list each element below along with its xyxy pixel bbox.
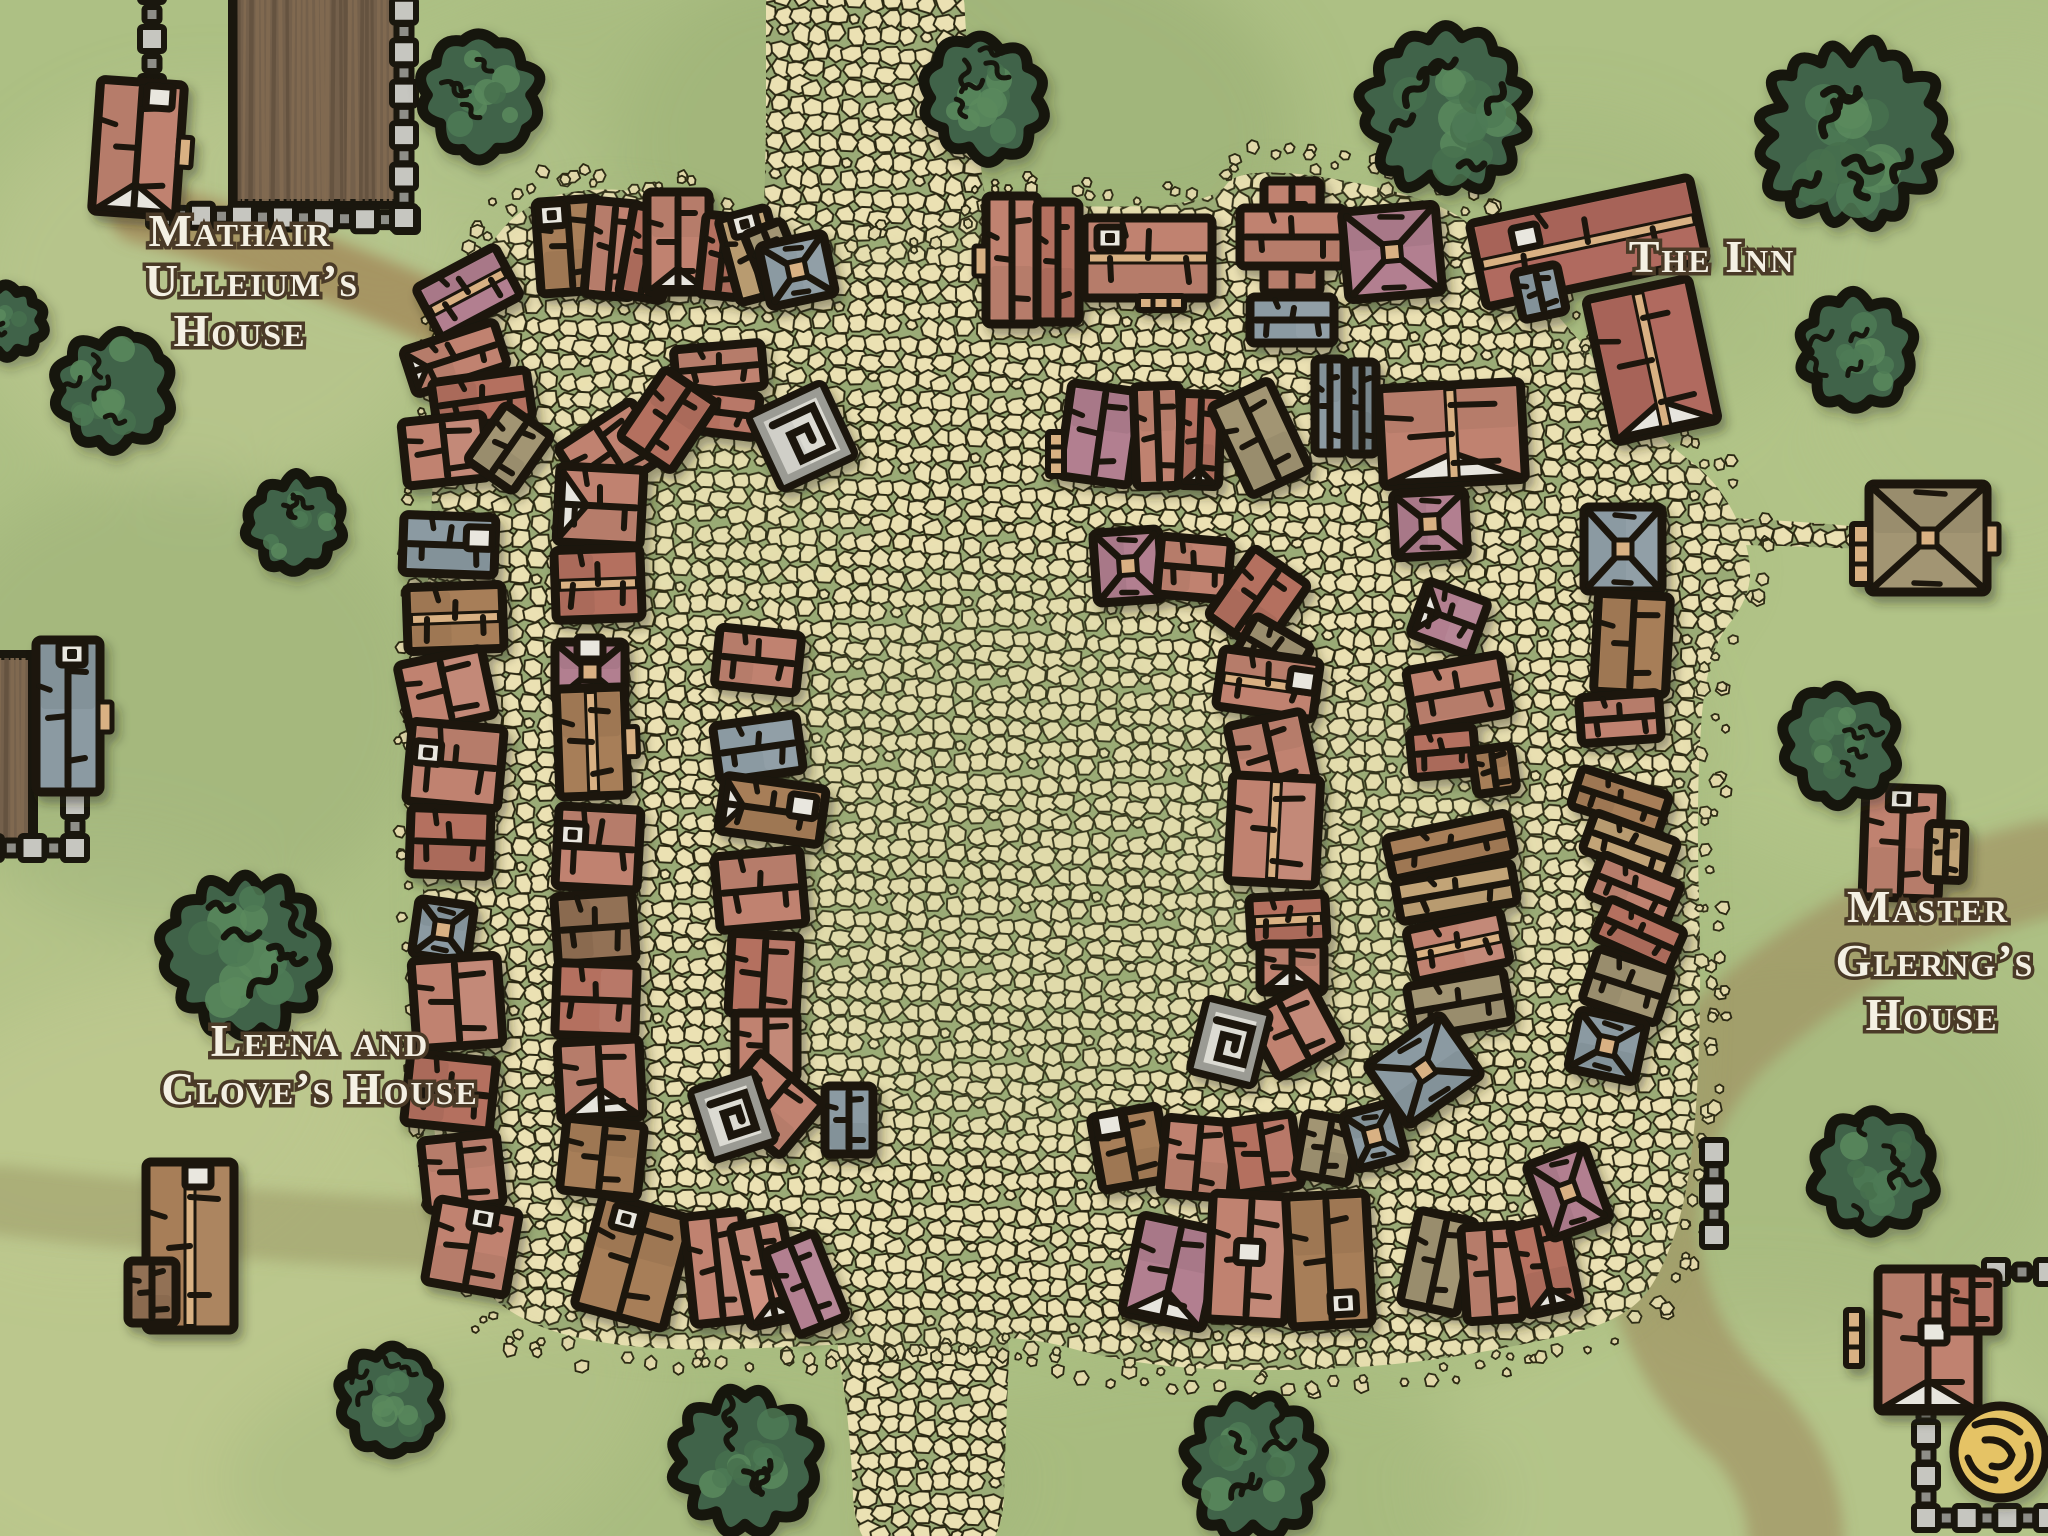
svg-text:Leena and: Leena and <box>211 1015 429 1066</box>
svg-text:House: House <box>1866 989 1999 1040</box>
svg-text:Glerng’s: Glerng’s <box>1836 935 2035 986</box>
svg-text:Master: Master <box>1847 881 2009 932</box>
svg-text:House: House <box>174 305 307 356</box>
svg-text:The Inn: The Inn <box>1629 231 1796 282</box>
svg-text:Ulleium’s: Ulleium’s <box>145 255 359 306</box>
svg-text:Mathair: Mathair <box>148 205 331 256</box>
svg-text:Clove’s House: Clove’s House <box>161 1063 478 1114</box>
